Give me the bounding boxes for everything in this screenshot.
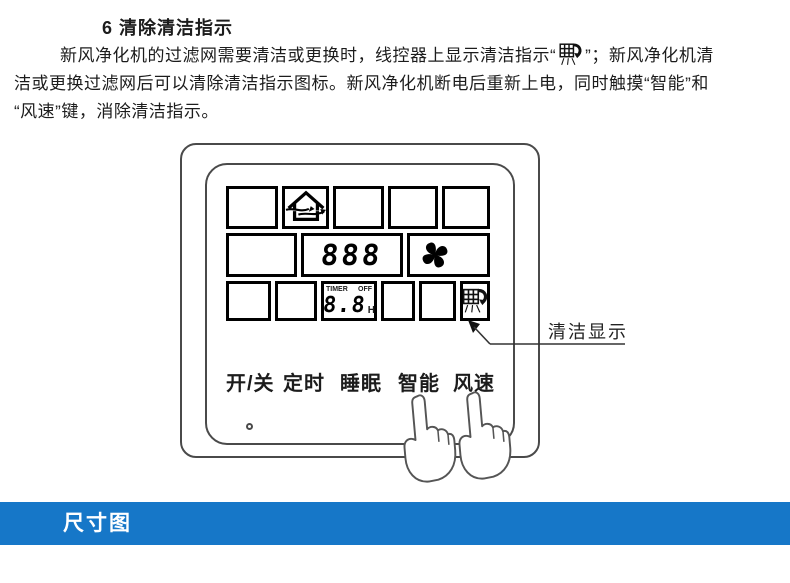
lcd-row-1 bbox=[226, 186, 490, 229]
lcd-cell bbox=[419, 281, 456, 321]
timer-digits: 8.8 bbox=[322, 293, 367, 318]
timer-unit: H bbox=[368, 305, 375, 316]
button-power[interactable]: 开/关 bbox=[226, 367, 275, 396]
footer-banner: 尺寸图 bbox=[0, 502, 790, 545]
fresh-air-house-icon bbox=[285, 188, 327, 228]
fan-icon bbox=[418, 238, 452, 272]
lcd-row-2: 888 bbox=[226, 233, 490, 277]
paragraph-line-2: 洁或更换过滤网后可以清除清洁指示图标。新风净化机断电后重新上电，同时触摸“智能”… bbox=[14, 70, 780, 98]
manual-page: 6 清除清洁指示 新风净化机的过滤网需要清洁或更换时，线控器上显示清洁指示“ bbox=[0, 0, 790, 583]
filter-clean-icon bbox=[462, 287, 488, 315]
timer-label: TIMER bbox=[326, 286, 348, 293]
lcd-cell bbox=[442, 186, 490, 229]
button-timer[interactable]: 定时 bbox=[283, 367, 325, 396]
button-sleep[interactable]: 睡眠 bbox=[340, 367, 382, 396]
paragraph-text-before-icon: 新风净化机的过滤网需要清洁或更换时，线控器上显示清洁指示“ bbox=[60, 46, 556, 65]
section-heading: 6 清除清洁指示 bbox=[102, 14, 233, 40]
footer-banner-label: 尺寸图 bbox=[63, 502, 132, 545]
paragraph-line-1: 新风净化机的过滤网需要清洁或更换时，线控器上显示清洁指示“ ”；新风净化机清 bbox=[14, 42, 780, 70]
lcd-display: 888 bbox=[226, 186, 490, 325]
filter-clean-icon bbox=[557, 42, 584, 67]
paragraph-text-after-icon: ”；新风净化机清 bbox=[585, 46, 714, 65]
lcd-cell bbox=[226, 233, 297, 277]
timer-off-label: OFF bbox=[358, 286, 372, 293]
lcd-cell bbox=[226, 186, 278, 229]
callout-label: 清洁显示 bbox=[548, 318, 628, 344]
lcd-cell-digits: 888 bbox=[301, 233, 403, 277]
indicator-led bbox=[246, 423, 253, 430]
timer-labels: TIMER OFF bbox=[326, 286, 372, 293]
lcd-cell bbox=[275, 281, 317, 321]
lcd-cell bbox=[226, 281, 271, 321]
timer-value: 8.8 H bbox=[323, 293, 375, 318]
pointing-hand-icon bbox=[449, 386, 515, 486]
lcd-cell-fresh-air bbox=[282, 186, 329, 229]
lcd-main-digits: 888 bbox=[320, 238, 385, 272]
lcd-cell-fan bbox=[407, 233, 490, 277]
lcd-cell-timer: TIMER OFF 8.8 H bbox=[321, 281, 377, 321]
lcd-row-3: TIMER OFF 8.8 H bbox=[226, 281, 490, 321]
paragraph-line-3: “风速”键，消除清洁指示。 bbox=[14, 98, 780, 126]
lcd-cell bbox=[333, 186, 384, 229]
lcd-cell bbox=[381, 281, 415, 321]
lcd-cell bbox=[388, 186, 438, 229]
instructions-paragraph: 新风净化机的过滤网需要清洁或更换时，线控器上显示清洁指示“ ”；新风净化机清 bbox=[14, 42, 780, 126]
